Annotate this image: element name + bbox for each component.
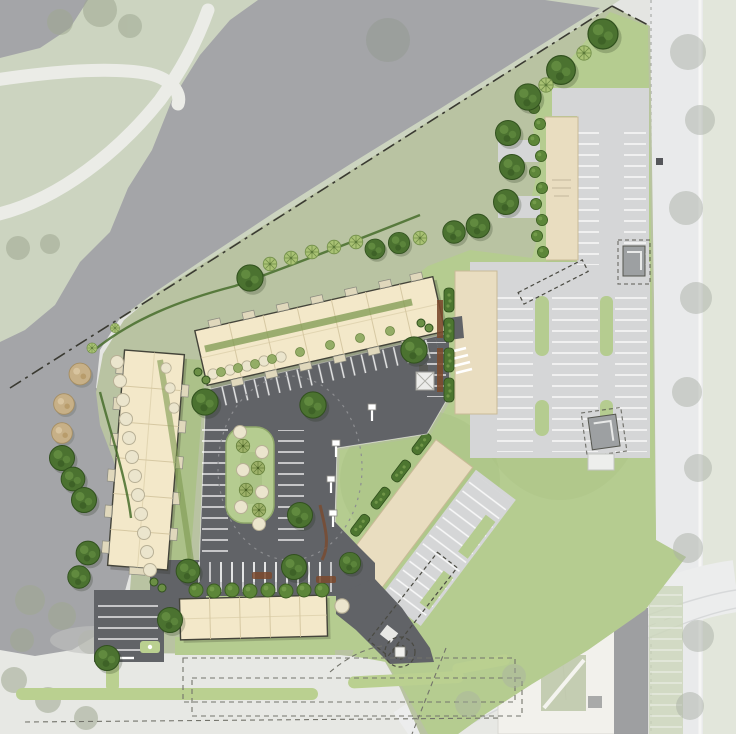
site-plan-drawing bbox=[0, 0, 736, 734]
road-fixture bbox=[656, 158, 663, 165]
faded-tree-over-water bbox=[366, 18, 410, 62]
concrete-pad bbox=[588, 454, 614, 470]
building-pad-east bbox=[455, 271, 497, 414]
site-plan-canvas bbox=[0, 0, 736, 734]
building-c bbox=[180, 595, 331, 643]
